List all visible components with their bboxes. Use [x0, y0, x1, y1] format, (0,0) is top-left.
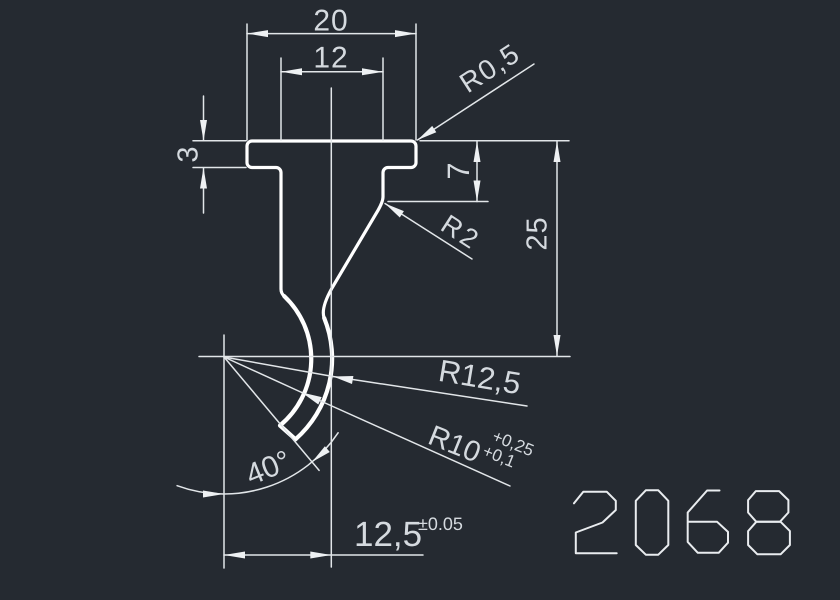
svg-text:7: 7 — [441, 162, 476, 179]
svg-text:R2: R2 — [436, 209, 486, 256]
svg-text:12: 12 — [313, 42, 348, 75]
svg-text:3: 3 — [173, 146, 205, 162]
svg-text:40°: 40° — [241, 444, 295, 492]
svg-text:R10: R10 — [424, 420, 485, 470]
svg-text:20: 20 — [313, 5, 348, 38]
svg-text:R0,5: R0,5 — [454, 37, 526, 98]
svg-text:25: 25 — [522, 216, 554, 250]
svg-text:12,5: 12,5 — [354, 515, 422, 554]
svg-text:±0.05: ±0.05 — [418, 514, 463, 534]
